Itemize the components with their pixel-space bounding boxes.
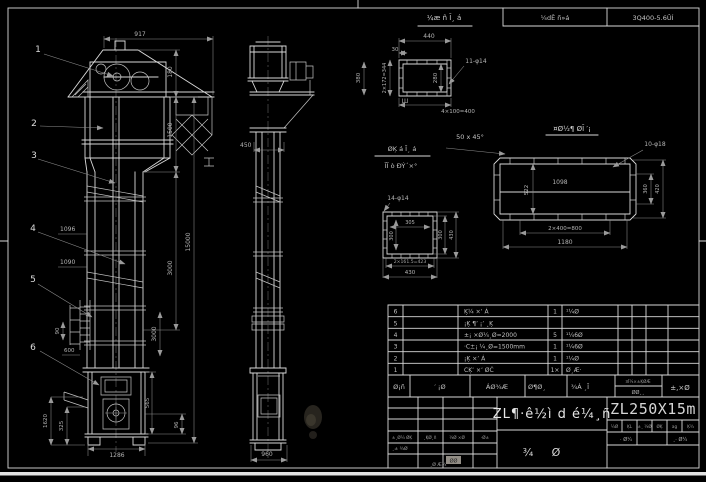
detail-b-1180: 1180 xyxy=(557,239,572,246)
tb-bottom-char-left: ¾ xyxy=(523,446,534,459)
dim-600: 600 xyxy=(64,348,75,354)
smudge-artifact xyxy=(304,405,322,439)
dim-15000: 15000 xyxy=(185,232,192,251)
detail-b-360: 360 xyxy=(643,184,649,194)
tb-grid-2: ¼Ø ×Ø xyxy=(449,435,465,440)
th-last: ±,×Ø xyxy=(670,384,690,392)
tb-right-cell-2: ±¸ ¼Ø xyxy=(637,424,652,429)
tb-grid-below: ¸Ø Æ¼ xyxy=(430,461,447,468)
dim-565: 565 xyxy=(145,397,151,408)
parts-row-qty: 1× xyxy=(551,367,560,374)
detail-b-522: 522 xyxy=(524,185,530,196)
dim-90: 90 xyxy=(55,327,61,334)
sheet-bottom-edge xyxy=(0,472,706,476)
detail-b-label: ¤Ø½¶ ØĨ ′¡ xyxy=(553,124,591,133)
dim-1090: 1090 xyxy=(60,259,75,266)
tb-grid-1: ¸ĶØ¸ñ xyxy=(424,435,437,440)
balloon-4: 4 xyxy=(30,224,36,234)
detail-b-holes: 10-φ18 xyxy=(644,141,666,148)
th-cell-1: ′ ¡Ø xyxy=(434,383,445,391)
dim-3000b: 3000 xyxy=(151,326,158,341)
detail-a-label: ¼æ ñ Ĩ¸ á xyxy=(427,13,462,22)
detail-c-430: 430 xyxy=(405,270,416,276)
dim-450: 450 xyxy=(240,142,252,149)
balloon-2: 2 xyxy=(31,119,37,129)
tb-right-cell-0: ¼Ø xyxy=(611,424,619,429)
detail-a: ¼æ ñ Ĩ¸ á 440 30 2×172=344 280 4×100=400… xyxy=(382,13,487,115)
top-header: ¼dÊ ñ»á 3Q400-5.6ÛÍ xyxy=(503,8,699,26)
parts-row-name: ±¡ ×Ø¼¸Ø=2000 xyxy=(464,332,517,339)
tb-grid-b: ¸± ¾Ø xyxy=(392,445,408,452)
th-cell-4: ¾Á ¸Ī xyxy=(571,382,589,391)
balloon-1: 1 xyxy=(35,45,41,55)
dim-380: 380 xyxy=(356,72,362,83)
dim-1500: 1500 xyxy=(167,122,174,137)
side-view-dimensions: 450 960 380 xyxy=(240,62,364,462)
parts-row-name: ·C±¡ ¼¸Ø=1500mm xyxy=(464,344,525,351)
parts-row-no: 4 xyxy=(394,332,398,339)
tb-right-cell-3: ØĶ xyxy=(656,424,662,429)
detail-a-dim-280: 280 xyxy=(433,72,439,83)
detail-c-label1: ØĶ á Ĩ¸ á xyxy=(388,144,417,154)
balloon-3: 3 xyxy=(31,151,37,161)
balloon-6: 6 xyxy=(30,343,36,353)
parts-row-no: 3 xyxy=(394,344,398,351)
dim-96: 96 xyxy=(174,421,180,428)
dim-1286: 1286 xyxy=(109,452,124,459)
model-number: ZL250X15m xyxy=(610,400,696,418)
cad-drawing-canvas: ¼dÊ ñ»á 3Q400-5.6ÛÍ 1 2 3 4 5 6 917 xyxy=(0,0,706,482)
detail-a-dim-left: 2×172=344 xyxy=(382,63,388,94)
parts-row-qty: 1 xyxy=(553,344,557,351)
dim-1620: 1620 xyxy=(43,414,49,428)
dim-325: 325 xyxy=(59,420,65,431)
dim-917: 917 xyxy=(134,31,146,38)
front-view: 1 2 3 4 5 6 917 180 1500 3000 15000 3000… xyxy=(30,31,214,459)
detail-b-1098: 1098 xyxy=(552,179,567,186)
parts-row-material: ¹¼Ø xyxy=(566,309,579,316)
detail-c-right300: 300 xyxy=(438,230,444,240)
parts-row-no: 2 xyxy=(394,355,398,362)
parts-row-no: 5 xyxy=(394,320,398,327)
detail-c-label2: ĨĨ ò ÐÝ´×° xyxy=(384,161,418,170)
th-cell-3: Ø¶Ø¸ xyxy=(528,383,546,391)
detail-a-dim-30: 30 xyxy=(392,47,399,53)
dim-1096: 1096 xyxy=(60,226,75,233)
detail-b: ¤Ø½¶ ØĨ ′¡ 50 x 45° 1098 522 360 420 2×4… xyxy=(446,124,666,249)
side-view: 450 960 380 xyxy=(240,36,364,462)
top-box-right-label: 3Q400-5.6ÛÍ xyxy=(632,13,673,22)
detail-b-chamfer: 50 x 45° xyxy=(456,133,484,141)
parts-row-material: Ø¸Æ· xyxy=(566,367,582,374)
detail-a-dim-440: 440 xyxy=(423,33,435,40)
detail-c-305: 305 xyxy=(405,220,415,226)
parts-row-no: 6 xyxy=(394,309,398,316)
title-block: Ø¡ñ ′ ¡Ø ÁØ¾Æ Ø¶Ø¸ ¾Á ¸Ī ¤Ī¼×±ĶØÆ ØØ¸¸ ±… xyxy=(388,375,699,468)
tb-right-row2-1: ¸· Ø¼ xyxy=(673,436,688,443)
parts-row-name: CĶʼ ×ʼ ØĊ xyxy=(464,367,494,374)
th-cell-2: ÁØ¾Æ xyxy=(486,382,508,391)
parts-row-qty: 5 xyxy=(553,332,557,339)
parts-row-name: ¡Ķ ¶ʼ ¡ʼ ¸Ķ xyxy=(464,320,494,327)
parts-row-material: ¹¼6Ø xyxy=(566,332,583,339)
detail-a-mark: Ш xyxy=(402,98,408,105)
balloon-5: 5 xyxy=(30,275,36,285)
tb-right-cell-4: ag xyxy=(672,424,678,429)
drawing-title: ZL¶·ê½ì d é¼¸ñ xyxy=(493,407,612,422)
parts-row-material: ¹¼6Ø xyxy=(566,344,583,351)
dim-960: 960 xyxy=(261,451,273,458)
th-small-top: ¤Ī¼×±ĶØÆ xyxy=(625,379,650,384)
tb-right-cell-1: ĶL xyxy=(627,424,633,429)
detail-a-holes: 11-φ14 xyxy=(465,58,487,65)
cad-drawing: ¼dÊ ñ»á 3Q400-5.6ÛÍ 1 2 3 4 5 6 917 xyxy=(0,0,706,482)
tb-right-cell-5: Ķ¾ xyxy=(687,424,694,429)
parts-row-no: 1 xyxy=(394,367,398,374)
drawing-frame xyxy=(0,0,706,476)
detail-c: ØĶ á Ĩ¸ á ĨĨ ò ÐÝ´×° 14-φ14 305 300 300 … xyxy=(375,144,459,278)
tb-right-row2-0: · Ø¼ xyxy=(620,436,632,443)
parts-row-material: ¹¼Ø xyxy=(566,355,579,362)
tb-grid-3: ·Ø± xyxy=(481,435,490,440)
tb-grid-0: ±¸Ø¼ ØĶ xyxy=(392,435,413,440)
parts-row-qty: 1 xyxy=(553,355,557,362)
tb-bottom-char-right: Ø xyxy=(552,446,561,459)
top-box-left-label: ¼dÊ ñ»á xyxy=(541,13,570,22)
detail-c-holes: 14-φ14 xyxy=(387,195,409,202)
parts-row-qty: 1 xyxy=(553,309,557,316)
dim-3000: 3000 xyxy=(167,260,174,275)
parts-row-name: Ķ¼ ×ʼ Á xyxy=(464,309,489,316)
detail-b-800: 2×400=800 xyxy=(548,226,582,232)
dim-180: 180 xyxy=(167,66,174,78)
detail-b-420: 420 xyxy=(655,184,661,194)
detail-c-right430: 430 xyxy=(449,230,455,240)
detail-c-left300: 300 xyxy=(389,231,395,241)
detail-a-dim-bottom: 4×100=400 xyxy=(441,109,475,115)
detail-c-423: 2×161.5=423 xyxy=(394,259,427,265)
parts-row-name: ¡Ķ ×ʼ Á xyxy=(464,355,486,362)
th-cell-0: Ø¡ñ xyxy=(393,383,405,391)
th-small-bottom: ØØ¸¸ xyxy=(632,389,645,396)
tb-gray-text: ØØ xyxy=(450,458,458,465)
